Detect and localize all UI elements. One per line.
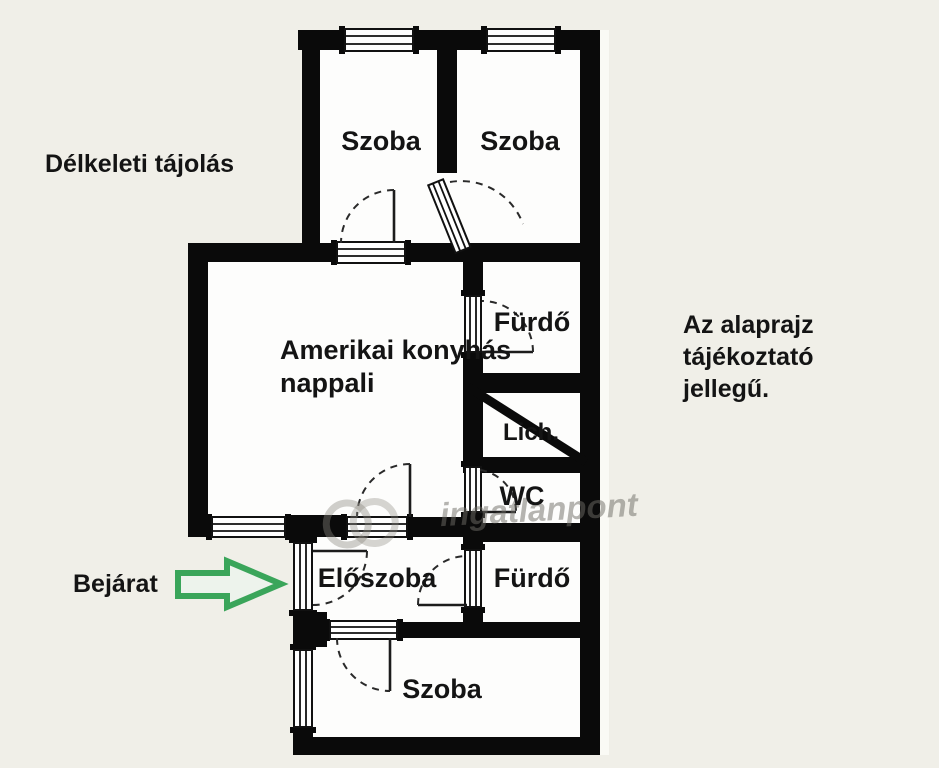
- floor-plan-page: ingatlanpont Szoba Szoba Amerikai konyhá…: [0, 0, 939, 768]
- disclaimer-line2: tájékoztató: [683, 343, 814, 371]
- room-label-eloszoba: Előszoba: [318, 563, 438, 593]
- disclaimer-line3: jellegű.: [682, 375, 769, 403]
- room-label-szoba-bottom: Szoba: [402, 674, 482, 704]
- wall-outer-highlight: [600, 30, 609, 755]
- disclaimer-line1: Az alaprajz: [683, 311, 814, 339]
- room-label-furdo-lower: Fürdő: [494, 563, 570, 593]
- room-label-nappali-line2: nappali: [280, 368, 375, 398]
- window-szoba-bottom-left: [290, 644, 316, 733]
- orientation-note: Délkeleti tájolás: [45, 150, 234, 178]
- room-label-szoba-top-right: Szoba: [480, 126, 560, 156]
- entrance-label: Bejárat: [73, 570, 158, 598]
- room-label-furdo-upper: Fürdő: [494, 307, 570, 337]
- window-nappali-bottom: [206, 514, 291, 540]
- window-top-left: [339, 26, 419, 54]
- room-label-lich: Lich.: [503, 419, 559, 446]
- room-label-wc: WC: [500, 481, 545, 511]
- room-label-nappali-line1: Amerikai konyhás: [280, 335, 511, 365]
- room-label-szoba-top-left: Szoba: [341, 126, 421, 156]
- floor-plan-drawing: ingatlanpont Szoba Szoba Amerikai konyhá…: [0, 0, 939, 768]
- window-top-right: [481, 26, 561, 54]
